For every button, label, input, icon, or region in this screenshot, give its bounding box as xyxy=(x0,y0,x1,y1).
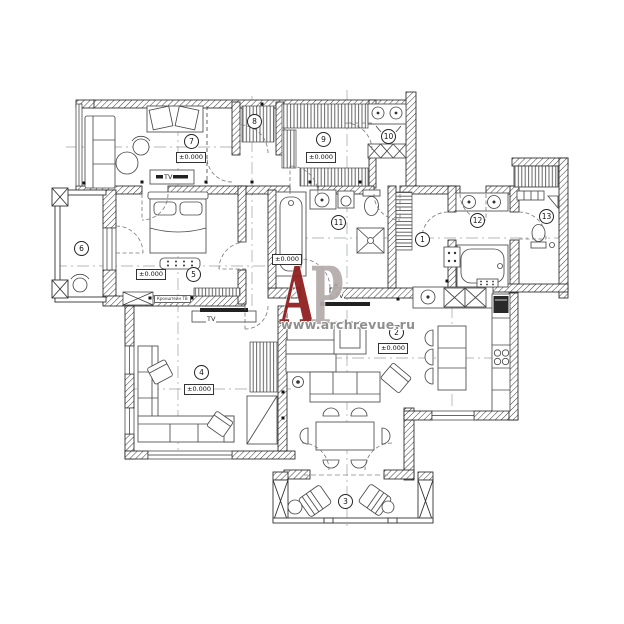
watermark-url: www.archrevue.ru xyxy=(281,317,415,332)
room-badge-9: 9 xyxy=(316,132,331,147)
room-number: 12 xyxy=(473,217,483,225)
room-number: 3 xyxy=(343,498,348,506)
room1-furniture xyxy=(444,247,460,267)
room-badge-11: 11 xyxy=(331,215,346,230)
room-badge-5: 5 xyxy=(186,267,201,282)
kitchen-furniture xyxy=(413,279,510,411)
room-badge-4: 4 xyxy=(194,365,209,380)
room-badge-13: 13 xyxy=(539,209,554,224)
room-number: 1 xyxy=(420,236,425,244)
room-number: 6 xyxy=(79,245,84,253)
room-number: 5 xyxy=(191,271,196,279)
elevation-label-room7: ±0.000 xyxy=(176,152,206,163)
room-badge-3: 3 xyxy=(338,494,353,509)
elevation-label-room2: ±0.000 xyxy=(378,343,408,354)
elevation-label-room4: ±0.000 xyxy=(184,384,214,395)
room13-window-band xyxy=(514,166,558,187)
room-number: 13 xyxy=(542,213,552,221)
room-number: 9 xyxy=(321,136,326,144)
elevation-label-room5: ±0.000 xyxy=(136,269,166,280)
room-badge-8: 8 xyxy=(247,114,262,129)
room-badge-7: 7 xyxy=(184,134,199,149)
room-number: 11 xyxy=(334,219,344,227)
tv-label-room7: TV xyxy=(163,174,173,181)
tv-label-room4: TV xyxy=(206,316,216,323)
room-badge-10: 10 xyxy=(381,129,396,144)
floor-plan: 1 2 3 4 5 6 7 8 9 10 11 12 13 ±0.000 ±0.… xyxy=(0,0,624,624)
room-badge-12: 12 xyxy=(470,213,485,228)
elevation-label-room9: ±0.000 xyxy=(306,152,336,163)
tv-bracket-label: Кронштейн ТВ xyxy=(154,295,191,303)
room-badge-6: 6 xyxy=(74,241,89,256)
room-number: 10 xyxy=(384,133,394,141)
room6-furniture xyxy=(71,274,89,292)
room-number: 7 xyxy=(189,138,194,146)
room-number: 8 xyxy=(252,118,257,126)
room-number: 4 xyxy=(199,369,204,377)
room-badge-1: 1 xyxy=(415,232,430,247)
